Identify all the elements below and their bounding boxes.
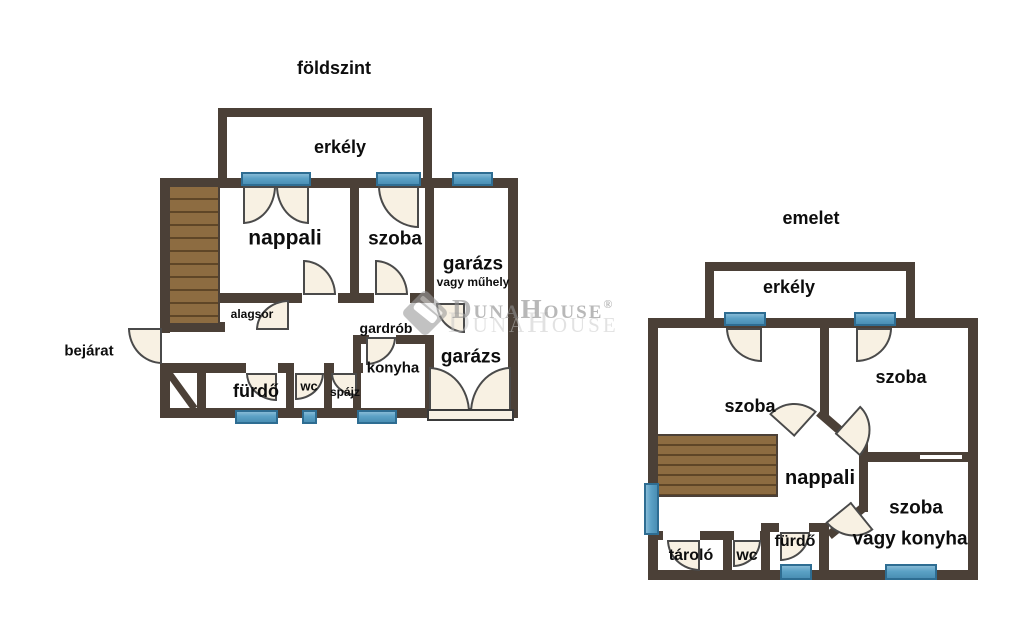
- wall: [968, 318, 978, 580]
- window: [644, 483, 659, 535]
- stairs: [656, 434, 778, 497]
- door-arc: [378, 186, 419, 228]
- window: [452, 172, 493, 186]
- room-label-room: szoba: [368, 230, 422, 249]
- window: [357, 410, 397, 424]
- floorplan-image: földszint erkély: [0, 0, 1024, 620]
- room-label-wc: wc: [300, 380, 317, 393]
- room-label-room-or-kitchen-1: szoba: [889, 499, 943, 518]
- room-label-garage-top-sub: vagy műhely: [437, 276, 510, 288]
- room-label-balcony: erkély: [314, 138, 366, 156]
- wall: [197, 363, 206, 408]
- door-arc: [303, 260, 336, 295]
- wall: [723, 540, 732, 580]
- wall: [218, 108, 227, 188]
- room-label-room-right: szoba: [875, 368, 926, 386]
- room-label-pantry: spájz: [330, 386, 360, 398]
- door-arc: [276, 186, 309, 224]
- door-arc: [726, 328, 762, 362]
- window: [302, 410, 317, 424]
- pass-through-window: [920, 455, 962, 459]
- wall: [396, 335, 425, 344]
- room-label-bathroom2: fürdő: [775, 534, 816, 550]
- wall: [218, 108, 432, 117]
- wall: [819, 523, 829, 580]
- door-arc: [769, 389, 817, 437]
- wall: [324, 363, 334, 373]
- watermark-registered: ®: [603, 297, 614, 311]
- room-label-garage-bottom: garázs: [441, 348, 501, 367]
- room-label-entrance: bejárat: [64, 344, 113, 359]
- wall: [761, 523, 779, 532]
- wall: [705, 262, 915, 271]
- window: [854, 312, 896, 326]
- door-arc: [835, 406, 886, 457]
- room-label-wardrobe: gardrób: [360, 321, 413, 335]
- garage-door-arc: [429, 367, 470, 413]
- wall: [820, 328, 829, 417]
- stairs: [168, 185, 220, 325]
- room-label-kitchen: konyha: [367, 361, 420, 376]
- room-label-living2: nappali: [785, 468, 855, 488]
- wall: [278, 363, 294, 373]
- wall: [648, 318, 978, 328]
- watermark: DunaHouse®: [452, 294, 614, 325]
- window: [235, 410, 278, 424]
- room-label-storage: tároló: [669, 548, 713, 564]
- wall: [286, 373, 294, 408]
- wall: [700, 531, 734, 540]
- door-arc: [375, 260, 408, 295]
- window: [376, 172, 421, 186]
- garage-door-sill: [427, 409, 514, 421]
- room-label-wc2: wc: [736, 548, 757, 564]
- room-label-garage-top: garázs: [443, 255, 503, 274]
- wall: [423, 108, 432, 188]
- window: [885, 564, 937, 580]
- room-label-balcony2: erkély: [763, 278, 815, 296]
- room-label-room-left: szoba: [724, 397, 775, 415]
- watermark-brand: DunaHouse: [452, 294, 603, 324]
- floor1-title: földszint: [297, 59, 371, 77]
- garage-door-arc: [470, 367, 511, 413]
- room-label-room-or-kitchen-2: vagy konyha: [852, 530, 967, 549]
- room-label-bathroom: fürdő: [233, 382, 279, 400]
- wall: [350, 188, 359, 303]
- window: [241, 172, 311, 186]
- door-arc: [243, 186, 276, 224]
- door-arc: [856, 328, 892, 362]
- floor2-title: emelet: [782, 209, 839, 227]
- door-arc: [128, 328, 162, 364]
- wall: [425, 178, 434, 302]
- room-label-living: nappali: [248, 228, 322, 249]
- wall: [338, 293, 374, 303]
- window: [780, 564, 812, 580]
- window: [724, 312, 766, 326]
- room-label-basement: alagsor: [231, 308, 274, 320]
